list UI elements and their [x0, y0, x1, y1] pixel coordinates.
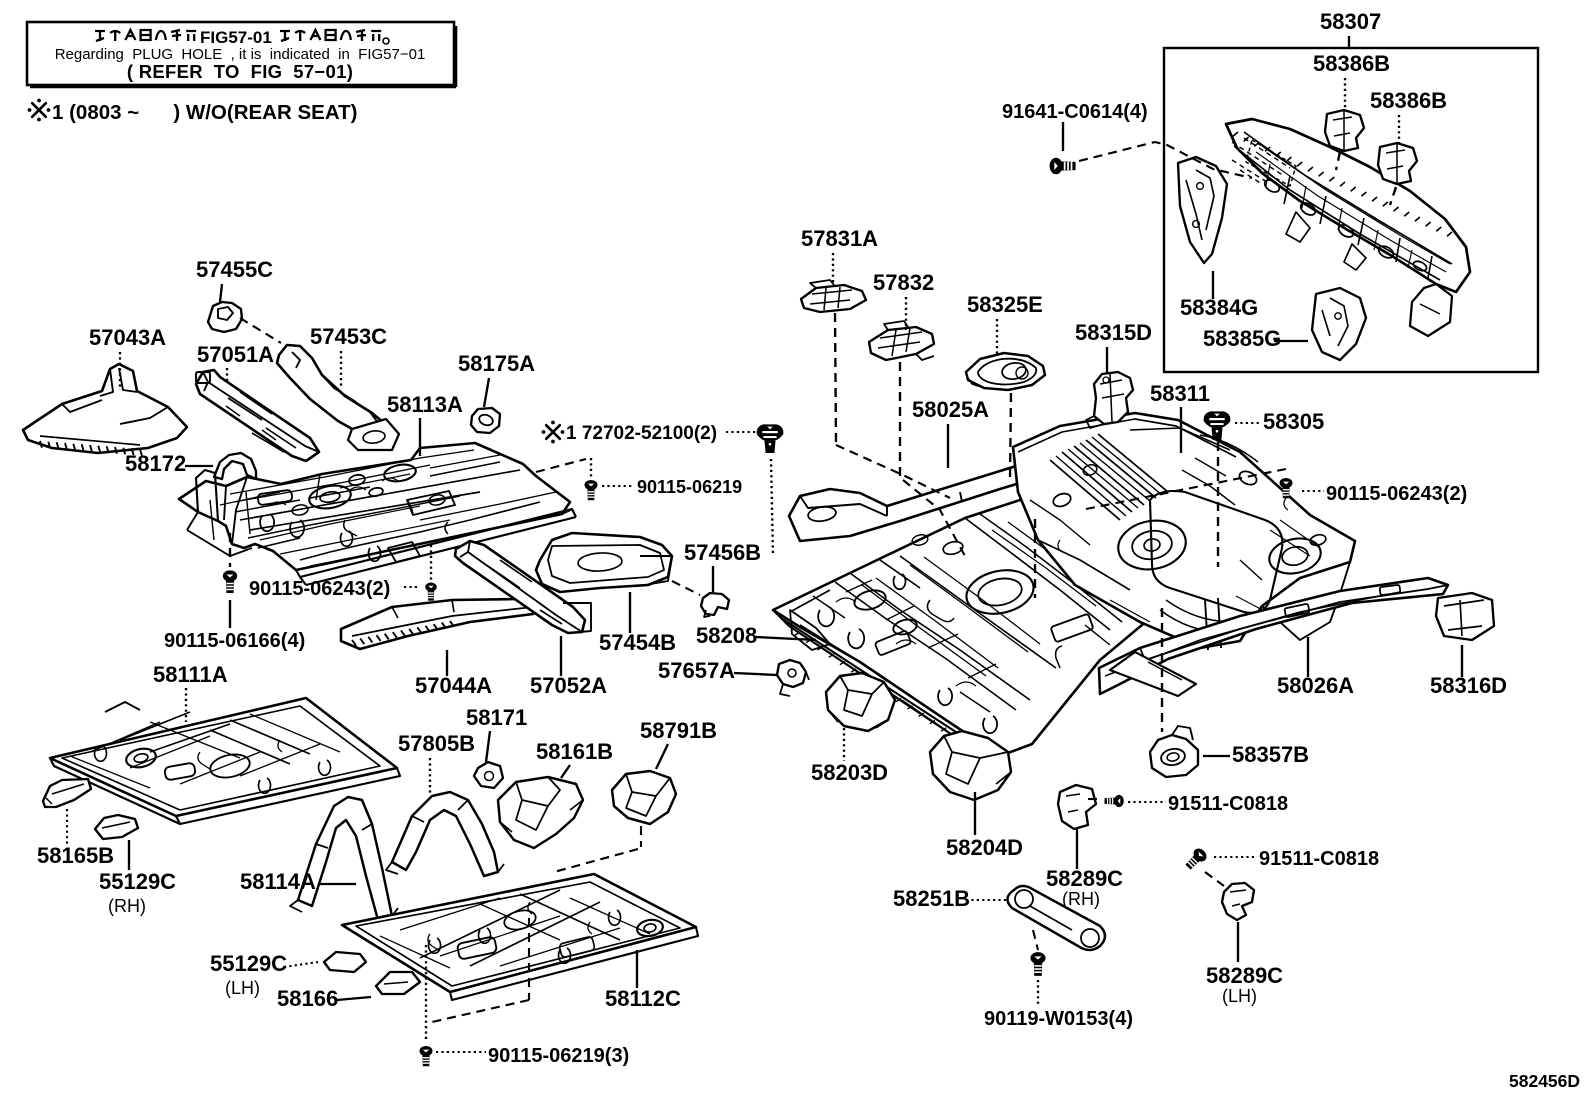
svg-text:58289C: 58289C [1046, 866, 1123, 891]
svg-text:57456B: 57456B [684, 540, 761, 565]
svg-text:58791B: 58791B [640, 718, 717, 743]
svg-text:1 72702-52100(2): 1 72702-52100(2) [566, 423, 717, 444]
svg-text:58316D: 58316D [1430, 673, 1507, 698]
svg-text:57052A: 57052A [530, 673, 607, 698]
svg-text:582456D: 582456D [1509, 1071, 1580, 1091]
svg-text:91511-C0818: 91511-C0818 [1259, 848, 1379, 870]
svg-text:58325E: 58325E [967, 292, 1043, 317]
svg-text:58311: 58311 [1150, 381, 1210, 406]
svg-text:90119-W0153(4): 90119-W0153(4) [984, 1008, 1133, 1030]
svg-text:90115-06243(2): 90115-06243(2) [249, 578, 390, 600]
svg-text:58386B: 58386B [1370, 88, 1447, 113]
svg-text:90115-06219: 90115-06219 [637, 477, 742, 497]
svg-text:57044A: 57044A [415, 673, 492, 698]
svg-text:58307: 58307 [1320, 9, 1381, 34]
svg-text:57455C: 57455C [196, 257, 273, 282]
svg-text:58386B: 58386B [1313, 51, 1390, 76]
svg-text:58111A: 58111A [153, 662, 228, 687]
svg-text:91511-C0818: 91511-C0818 [1168, 793, 1288, 815]
svg-text:91641-C0614(4): 91641-C0614(4) [1002, 101, 1148, 123]
svg-text:(LH): (LH) [225, 978, 260, 998]
svg-text:58357B: 58357B [1232, 742, 1309, 767]
svg-text:57453C: 57453C [310, 324, 387, 349]
svg-text:(LH): (LH) [1222, 986, 1257, 1006]
svg-text:58172: 58172 [125, 451, 186, 476]
svg-text:58385G: 58385G [1203, 326, 1281, 351]
svg-text:58315D: 58315D [1075, 320, 1152, 345]
svg-text:58171: 58171 [466, 705, 527, 730]
svg-text:55129C: 55129C [210, 951, 287, 976]
svg-text:1 (0803 ~ ) W/O(REAR SEAT: 1 (0803 ~ ) W/O(REAR SEAT) [52, 101, 357, 124]
svg-text:58025A: 58025A [912, 397, 989, 422]
svg-text:55129C: 55129C [99, 869, 176, 894]
svg-text:58305: 58305 [1263, 409, 1324, 434]
svg-text:58165B: 58165B [37, 843, 114, 868]
svg-text:58161B: 58161B [536, 739, 613, 764]
svg-text:58203D: 58203D [811, 760, 888, 785]
svg-text:58251B: 58251B [893, 886, 970, 911]
svg-text:57805B: 57805B [398, 731, 475, 756]
svg-text:58114A: 58114A [240, 869, 316, 894]
svg-text:58289C: 58289C [1206, 963, 1283, 988]
svg-text:90115-06219(3): 90115-06219(3) [488, 1045, 629, 1067]
svg-text:57657A: 57657A [658, 658, 735, 683]
svg-text:58113A: 58113A [387, 392, 463, 417]
svg-text:57454B: 57454B [599, 630, 676, 655]
svg-text:58208: 58208 [696, 623, 757, 648]
svg-text:58384G: 58384G [1180, 295, 1258, 320]
svg-text:( REFER TO FIG 57−01): ( REFER TO FIG 57−01) [127, 61, 353, 82]
svg-text:58112C: 58112C [605, 986, 681, 1011]
svg-text:57043A: 57043A [89, 325, 166, 350]
svg-text:FIG57-01: FIG57-01 [200, 28, 272, 47]
svg-text:57051A: 57051A [197, 342, 274, 367]
svg-text:57831A: 57831A [801, 226, 878, 251]
svg-text:58026A: 58026A [1277, 673, 1354, 698]
svg-text:(RH): (RH) [1062, 889, 1100, 909]
svg-text:90115-06243(2): 90115-06243(2) [1326, 483, 1467, 505]
svg-text:58175A: 58175A [458, 351, 535, 376]
svg-text:90115-06166(4): 90115-06166(4) [164, 630, 305, 652]
svg-text:58166: 58166 [277, 986, 338, 1011]
svg-text:58204D: 58204D [946, 835, 1023, 860]
svg-text:57832: 57832 [873, 270, 934, 295]
svg-text:(RH): (RH) [108, 896, 146, 916]
